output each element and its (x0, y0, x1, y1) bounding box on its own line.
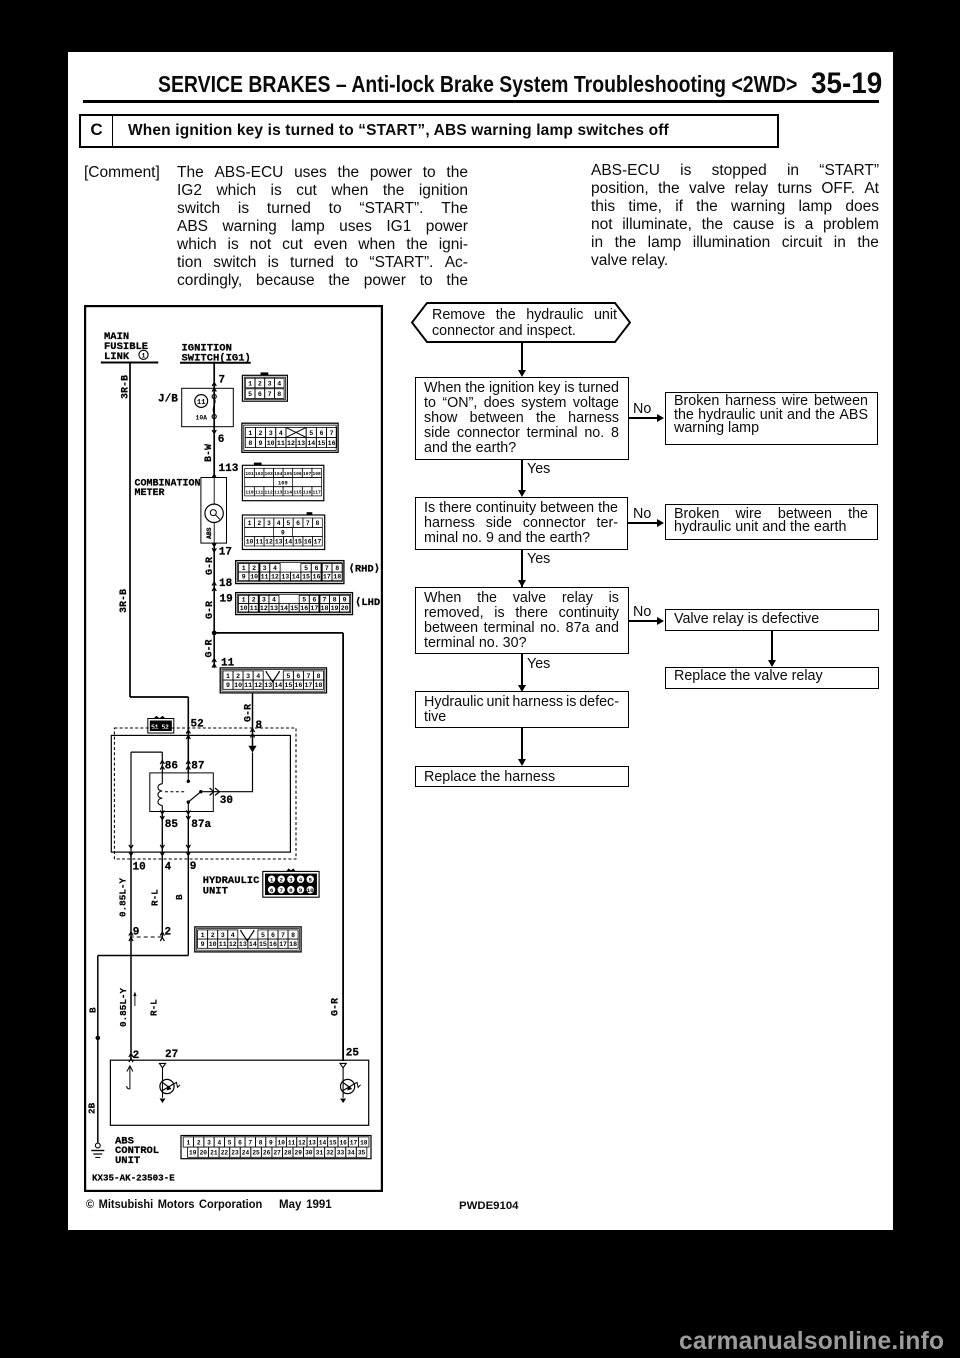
svg-text:9: 9 (242, 574, 246, 581)
svg-text:1: 1 (248, 380, 252, 387)
svg-text:7: 7 (330, 430, 334, 437)
svg-text:J/B: J/B (158, 394, 178, 406)
svg-text:13: 13 (270, 605, 278, 612)
svg-text:13: 13 (275, 539, 283, 546)
svg-text:1: 1 (242, 597, 246, 604)
svg-text:13: 13 (264, 682, 272, 689)
svg-text:2: 2 (197, 1139, 201, 1146)
svg-text:10: 10 (246, 539, 254, 546)
svg-text:B: B (88, 1007, 99, 1013)
svg-text:6: 6 (270, 887, 274, 894)
svg-text:16: 16 (269, 941, 277, 948)
svg-text:51: 51 (151, 724, 159, 731)
svg-text:12: 12 (298, 1139, 306, 1146)
svg-text:8: 8 (316, 673, 320, 680)
svg-text:105: 105 (284, 471, 293, 477)
svg-text:4: 4 (279, 430, 283, 437)
svg-text:15: 15 (302, 574, 310, 581)
svg-text:15: 15 (284, 682, 292, 689)
svg-text:4: 4 (277, 380, 281, 387)
svg-text:1: 1 (248, 520, 252, 527)
svg-text:3: 3 (221, 932, 225, 939)
svg-text:33: 33 (337, 1150, 345, 1157)
svg-text:B-W: B-W (204, 444, 215, 462)
svg-text:2: 2 (252, 597, 256, 604)
svg-text:7: 7 (268, 391, 272, 398)
svg-text:8: 8 (248, 440, 252, 447)
svg-text:12: 12 (265, 539, 273, 546)
svg-text:107: 107 (303, 471, 312, 477)
svg-text:11: 11 (277, 440, 285, 447)
svg-text:106: 106 (293, 471, 302, 477)
svg-text:30: 30 (305, 1150, 313, 1157)
svg-text:114: 114 (284, 490, 293, 496)
svg-text:18: 18 (219, 578, 233, 590)
svg-text:14: 14 (285, 539, 293, 546)
svg-text:6: 6 (314, 565, 318, 572)
svg-text:108: 108 (313, 471, 322, 477)
svg-text:12: 12 (287, 440, 295, 447)
svg-text:17: 17 (323, 574, 331, 581)
svg-text:19: 19 (331, 605, 339, 612)
svg-text:16: 16 (294, 682, 302, 689)
svg-text:10: 10 (250, 574, 258, 581)
svg-text:13: 13 (239, 941, 247, 948)
svg-text:18: 18 (320, 605, 328, 612)
svg-text:3: 3 (269, 430, 273, 437)
svg-text:113: 113 (274, 490, 283, 496)
svg-text:20: 20 (200, 1150, 208, 1157)
svg-text:3R-B: 3R-B (119, 589, 130, 613)
svg-text:21: 21 (210, 1150, 218, 1157)
svg-text:10: 10 (307, 887, 314, 894)
svg-text:4: 4 (299, 876, 303, 883)
svg-text:4: 4 (277, 520, 281, 527)
svg-text:9: 9 (343, 597, 347, 604)
svg-text:14: 14 (292, 574, 300, 581)
svg-text:2: 2 (259, 430, 263, 437)
svg-text:2: 2 (236, 673, 240, 680)
svg-text:14: 14 (280, 605, 288, 612)
svg-text:7: 7 (219, 375, 226, 387)
svg-text:6: 6 (218, 434, 225, 446)
svg-text:17: 17 (279, 941, 287, 948)
svg-text:15: 15 (329, 1139, 337, 1146)
svg-text:17: 17 (314, 539, 322, 546)
svg-text:86: 86 (165, 761, 178, 773)
svg-text:111: 111 (255, 490, 264, 496)
svg-text:UNIT: UNIT (115, 1155, 140, 1167)
svg-text:32: 32 (326, 1150, 334, 1157)
svg-text:5: 5 (261, 932, 265, 939)
svg-text:1: 1 (226, 673, 230, 680)
svg-text:23: 23 (231, 1150, 239, 1157)
svg-text:12: 12 (229, 941, 237, 948)
svg-text:16: 16 (304, 539, 312, 546)
svg-text:18: 18 (333, 574, 341, 581)
svg-text:16: 16 (339, 1139, 347, 1146)
svg-text:8: 8 (256, 720, 263, 732)
svg-text:7: 7 (325, 565, 329, 572)
svg-text:13: 13 (297, 440, 305, 447)
svg-text:9: 9 (299, 887, 303, 894)
svg-text:11: 11 (255, 539, 263, 546)
svg-text:1: 1 (201, 932, 205, 939)
svg-text:18: 18 (315, 682, 323, 689)
svg-text:112: 112 (265, 490, 274, 496)
svg-text:14: 14 (307, 440, 315, 447)
svg-text:24: 24 (242, 1150, 250, 1157)
svg-text:10: 10 (209, 941, 217, 948)
svg-text:1: 1 (242, 565, 246, 572)
svg-text:104: 104 (274, 471, 283, 477)
svg-text:1: 1 (270, 876, 274, 883)
svg-text:6: 6 (238, 1139, 242, 1146)
svg-text:115: 115 (293, 490, 302, 496)
svg-text:9: 9 (259, 440, 263, 447)
svg-text:10: 10 (234, 682, 242, 689)
svg-text:110: 110 (245, 490, 254, 496)
svg-text:31: 31 (316, 1150, 324, 1157)
svg-text:10A: 10A (196, 415, 208, 422)
svg-text:3: 3 (267, 520, 271, 527)
svg-text:35: 35 (358, 1150, 366, 1157)
svg-text:25: 25 (252, 1150, 260, 1157)
svg-text:3: 3 (289, 876, 293, 883)
svg-text:2: 2 (211, 932, 215, 939)
svg-text:26: 26 (263, 1150, 271, 1157)
svg-text:3: 3 (207, 1139, 211, 1146)
svg-text:10: 10 (267, 440, 275, 447)
svg-text:14: 14 (249, 941, 257, 948)
svg-text:15: 15 (290, 605, 298, 612)
svg-text:116: 116 (303, 490, 312, 496)
svg-text:1: 1 (248, 430, 252, 437)
svg-text:9: 9 (269, 1139, 273, 1146)
svg-text:9: 9 (281, 529, 285, 536)
svg-text:8: 8 (289, 887, 293, 894)
svg-text:UNIT: UNIT (203, 886, 228, 898)
svg-text:28: 28 (284, 1150, 292, 1157)
svg-text:6: 6 (258, 391, 262, 398)
svg-text:10: 10 (278, 1139, 286, 1146)
svg-text:⟨RHD⟩: ⟨RHD⟩ (349, 564, 381, 576)
svg-text:11: 11 (244, 682, 252, 689)
svg-text:22: 22 (221, 1150, 229, 1157)
svg-text:87a: 87a (191, 819, 211, 831)
svg-text:17: 17 (219, 547, 232, 559)
svg-text:5: 5 (304, 565, 308, 572)
svg-text:52: 52 (191, 719, 204, 731)
svg-text:113: 113 (219, 463, 239, 475)
svg-text:13: 13 (281, 574, 289, 581)
svg-text:10: 10 (133, 862, 146, 874)
svg-text:3: 3 (246, 673, 250, 680)
svg-text:R-L: R-L (150, 889, 161, 906)
svg-text:5: 5 (308, 876, 312, 883)
svg-text:11: 11 (288, 1139, 296, 1146)
svg-text:11: 11 (261, 574, 269, 581)
svg-text:7: 7 (306, 673, 310, 680)
svg-text:18: 18 (360, 1139, 368, 1146)
svg-text:5: 5 (286, 673, 290, 680)
svg-text:6: 6 (296, 520, 300, 527)
svg-text:12: 12 (254, 682, 262, 689)
svg-text:27: 27 (273, 1150, 281, 1157)
svg-text:METER: METER (135, 488, 165, 499)
svg-text:3: 3 (268, 380, 272, 387)
svg-text:2: 2 (258, 380, 262, 387)
svg-text:1: 1 (187, 1139, 191, 1146)
svg-text:7: 7 (322, 597, 326, 604)
svg-text:13: 13 (308, 1139, 316, 1146)
svg-text:20: 20 (341, 605, 349, 612)
svg-text:25: 25 (346, 1048, 360, 1060)
svg-text:4: 4 (217, 1139, 221, 1146)
svg-text:3R-B: 3R-B (121, 375, 132, 399)
svg-text:16: 16 (300, 605, 308, 612)
svg-text:3: 3 (262, 597, 266, 604)
svg-text:1: 1 (142, 353, 146, 360)
svg-text:85: 85 (165, 819, 179, 831)
svg-text:19: 19 (220, 594, 233, 606)
svg-text:4: 4 (273, 565, 277, 572)
svg-text:15: 15 (259, 941, 267, 948)
svg-text:8: 8 (277, 391, 281, 398)
svg-text:G-R: G-R (331, 998, 342, 1016)
svg-text:17: 17 (350, 1139, 358, 1146)
svg-text:B: B (174, 894, 185, 900)
svg-text:7: 7 (306, 520, 310, 527)
svg-text:18: 18 (289, 941, 297, 948)
svg-text:5: 5 (309, 430, 313, 437)
svg-text:4: 4 (231, 932, 235, 939)
svg-text:6: 6 (271, 932, 275, 939)
svg-text:14: 14 (274, 682, 282, 689)
svg-text:102: 102 (255, 471, 264, 477)
svg-text:8: 8 (316, 520, 320, 527)
svg-text:0.85L-Y: 0.85L-Y (118, 988, 129, 1027)
svg-text:⟨LHD⟩: ⟨LHD⟩ (355, 597, 383, 609)
svg-text:5: 5 (228, 1139, 232, 1146)
svg-text:KX35-AK-23503-E: KX35-AK-23503-E (92, 1173, 175, 1184)
svg-text:5: 5 (302, 597, 306, 604)
svg-text:15: 15 (294, 539, 302, 546)
svg-text:7: 7 (248, 1139, 252, 1146)
svg-text:2: 2 (257, 520, 261, 527)
svg-text:2B: 2B (87, 1102, 98, 1114)
svg-text:8: 8 (259, 1139, 263, 1146)
svg-text:2: 2 (252, 565, 256, 572)
svg-text:2: 2 (165, 927, 172, 939)
svg-text:LINK: LINK (104, 351, 130, 363)
svg-text:3: 3 (263, 565, 267, 572)
svg-text:9: 9 (226, 682, 230, 689)
svg-text:101: 101 (245, 471, 254, 477)
svg-text:29: 29 (295, 1150, 303, 1157)
svg-text:30: 30 (220, 795, 233, 807)
svg-text:9: 9 (201, 941, 205, 948)
svg-text:16: 16 (328, 440, 336, 447)
svg-text:16: 16 (312, 574, 320, 581)
svg-text:8: 8 (291, 932, 295, 939)
svg-text:34: 34 (347, 1150, 355, 1157)
svg-text:27: 27 (165, 1049, 178, 1061)
svg-text:8: 8 (335, 565, 339, 572)
svg-text:17: 17 (304, 682, 312, 689)
svg-text:11: 11 (219, 941, 227, 948)
svg-text:103: 103 (265, 471, 274, 477)
svg-text:6: 6 (296, 673, 300, 680)
svg-text:15: 15 (317, 440, 325, 447)
svg-text:117: 117 (313, 490, 322, 496)
svg-text:0.85L-Y: 0.85L-Y (118, 878, 129, 917)
svg-text:8: 8 (333, 597, 337, 604)
svg-text:17: 17 (310, 605, 318, 612)
svg-text:6: 6 (312, 597, 316, 604)
svg-text:5: 5 (286, 520, 290, 527)
svg-text:4: 4 (256, 673, 260, 680)
svg-text:2: 2 (280, 876, 284, 883)
svg-text:4: 4 (165, 862, 172, 874)
svg-text:87: 87 (191, 761, 204, 773)
svg-text:109: 109 (278, 481, 288, 487)
svg-text:12: 12 (271, 574, 279, 581)
svg-text:12: 12 (260, 605, 268, 612)
svg-text:5: 5 (248, 391, 252, 398)
svg-text:9: 9 (133, 927, 140, 939)
svg-text:6: 6 (319, 430, 323, 437)
svg-text:10: 10 (240, 605, 248, 612)
svg-text:7: 7 (281, 932, 285, 939)
svg-text:11: 11 (250, 605, 258, 612)
svg-text:52: 52 (161, 724, 169, 731)
svg-text:19: 19 (189, 1150, 197, 1157)
svg-text:R-L: R-L (149, 999, 160, 1016)
svg-text:4: 4 (272, 597, 276, 604)
svg-text:14: 14 (319, 1139, 327, 1146)
svg-text:ABS: ABS (206, 527, 213, 539)
svg-text:9: 9 (190, 861, 197, 873)
svg-text:7: 7 (280, 887, 284, 894)
svg-text:11: 11 (197, 399, 206, 407)
